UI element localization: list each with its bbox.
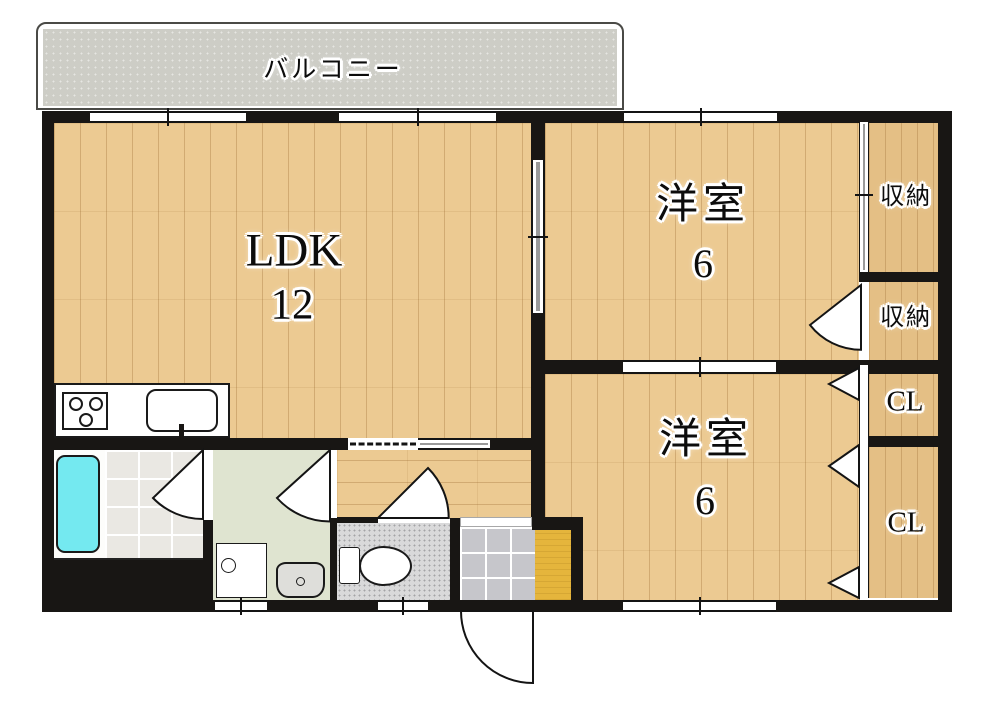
wall-genkan-top [532, 517, 583, 530]
closet-2-label: CL [887, 509, 924, 538]
washing-machine-drain [221, 558, 236, 573]
closet-door-track [859, 365, 869, 598]
window-ldk-1 [90, 111, 246, 123]
wall-bathroom-bottom [54, 560, 213, 604]
stove-burner [79, 413, 93, 427]
storage-2-label: 収納 [880, 306, 932, 330]
entry-genkan-tiles [460, 527, 535, 600]
window-toilet [378, 600, 428, 612]
window-western-1 [624, 111, 777, 123]
western-room-1-size: 6 [693, 244, 713, 284]
genkan-step-edge [460, 517, 532, 527]
wall-right [938, 111, 952, 612]
ldk-label: LDK [246, 228, 343, 275]
ldk-size-label: 12 [271, 284, 314, 327]
window-washroom [215, 600, 267, 612]
entry-door-arc [461, 611, 533, 683]
window-ldk-2 [339, 111, 496, 123]
sliding-door-ldk-western-1 [531, 160, 545, 313]
wall-toilet-top [337, 517, 378, 523]
balcony-label: バルコニー [263, 58, 403, 83]
washbasin-drain [296, 577, 305, 586]
opening-kitchen-hall [348, 438, 418, 450]
western-room-1-label: 洋室 [656, 184, 750, 226]
wall-storage-divider [859, 272, 938, 282]
window-western-2 [623, 600, 776, 612]
western-room-2-label: 洋室 [659, 419, 753, 461]
wall-bath-washroom [203, 520, 213, 604]
hallway-floor [337, 438, 531, 518]
bathroom-tile-floor [105, 450, 203, 558]
sliding-door-ldk-hall [418, 438, 490, 450]
storage-1-label: 収納 [880, 185, 932, 209]
toilet-tank [339, 547, 360, 584]
stove-burner [69, 397, 83, 411]
sliding-door-storage-1 [859, 122, 869, 272]
western-room-2-size: 6 [695, 481, 715, 521]
entry-mat [535, 527, 571, 600]
sliding-partition-rooms [623, 360, 776, 374]
closet-1-label: CL [886, 388, 923, 417]
wall-left [42, 111, 54, 612]
bathtub [56, 455, 100, 553]
wall-closet-divider [859, 436, 938, 447]
floor-plan: バルコニー LDK 12 洋室 6 洋室 6 収納 収納 CL CL [0, 0, 992, 716]
stove-burner [89, 397, 103, 411]
wall-mat-room [571, 530, 583, 602]
wall-washroom-toilet [330, 518, 337, 602]
wall-genkan-left [450, 518, 460, 604]
sink-faucet [179, 424, 184, 438]
